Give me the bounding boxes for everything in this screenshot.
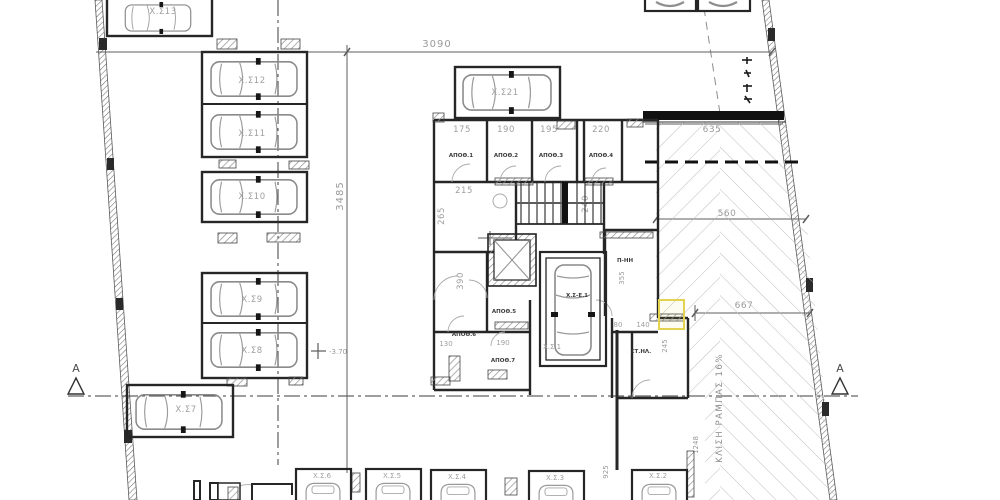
stall-label: Χ.Σ11 — [238, 129, 265, 139]
wall-stub — [267, 233, 300, 242]
dim-corr-h: 390 — [456, 272, 466, 290]
stall-label: Χ.Σ13 — [149, 7, 176, 17]
wall-stub — [217, 39, 237, 49]
wall-stub — [289, 161, 309, 169]
parking-stall-ks13: Χ.Σ13 — [107, 0, 212, 36]
parking-stall-ks5: Χ.Σ.5 — [366, 469, 421, 500]
dim-storage-3: 195 — [540, 125, 558, 135]
dim-e2: 140 — [636, 321, 649, 329]
level-marker: -3.70 — [311, 343, 347, 359]
dim-3090: 3090 — [422, 39, 451, 50]
stall-label: Χ.Σ10 — [238, 192, 265, 202]
parking-stall-ks3: Χ.Σ.3 — [529, 471, 584, 500]
stall-label: Χ.Σ8 — [241, 346, 262, 356]
top-right-stalls — [645, 0, 750, 11]
dim-e3: 245 — [661, 339, 669, 352]
wall-stub — [281, 39, 300, 49]
room-label-ap4: ΑΠΟΘ.4 — [589, 153, 613, 159]
floor-plan-canvas: 3090 3485 635 560 667 1248 925 -3.70 Χ.Σ… — [0, 0, 1000, 500]
room-label-ap6: ΑΠΟΘ.6 — [452, 332, 476, 338]
parking-stall-ks6: Χ.Σ.6 — [296, 469, 351, 500]
building-walls — [434, 120, 688, 470]
room-label-ap7: ΑΠΟΘ.7 — [491, 358, 515, 364]
wall-stub — [352, 473, 360, 492]
stall-label: Χ.Σ9 — [241, 295, 262, 305]
selection-highlight-box[interactable] — [659, 300, 684, 329]
bottom-row-walls — [194, 481, 292, 500]
section-letter: Α — [836, 362, 844, 375]
stall-label: Χ.Σ.4 — [448, 473, 467, 481]
level-value: -3.70 — [329, 348, 347, 356]
section-marker-right: Α — [832, 362, 848, 394]
dim-mech-h: 355 — [618, 271, 626, 284]
wall-stub — [289, 377, 303, 385]
parking-block-ks12-ks11: Χ.Σ12 Χ.Σ11 — [202, 52, 307, 157]
dim-e1: 80 — [614, 321, 623, 329]
parking-stall-ks7: Χ.Σ7 — [127, 385, 233, 437]
wall-stub — [219, 160, 236, 168]
property-boundary-left — [95, 0, 137, 500]
wall-stub — [228, 487, 238, 500]
dim-925: 925 — [602, 465, 610, 478]
dim-3485: 3485 — [335, 181, 346, 210]
dim-storage-2: 190 — [497, 125, 515, 135]
wall-stub — [218, 233, 237, 243]
room-label-elec: ΣΤ.ΗΛ. — [631, 349, 652, 355]
stall-label: Χ.Σ.1 — [543, 343, 561, 351]
ramp-slope-label: ΚΛΙΣΗ ΡΑΜΠΑΣ 16% — [715, 353, 725, 463]
room-label-mech: Π-ΗΗ — [617, 258, 633, 264]
dim-storage-4: 220 — [592, 125, 610, 135]
parking-stall-ks21: Χ.Σ21 — [455, 67, 560, 118]
staircase — [516, 182, 604, 224]
dim-storage-1: 175 — [453, 125, 471, 135]
wall-stub — [505, 478, 517, 495]
parking-stall-center: Χ.Σ-Ε.1 Χ.Σ.1 — [540, 252, 606, 366]
section-marker-left: Α — [68, 362, 84, 394]
stall-label: Χ.Σ.5 — [383, 472, 401, 480]
stall-label: Χ.Σ.6 — [313, 472, 332, 480]
dim-lobby-w: 215 — [455, 186, 473, 196]
parking-block-ks9-ks8: Χ.Σ9 Χ.Σ8 — [202, 273, 307, 378]
parking-stall-ks10: Χ.Σ10 — [202, 172, 307, 222]
boundary-survey-marks — [742, 57, 752, 103]
room-label-ap1: ΑΠΟΘ.1 — [449, 153, 473, 159]
parking-stall-ks2: Χ.Σ.2 — [632, 470, 687, 500]
stall-label: Χ.Σ21 — [491, 88, 518, 98]
dim-lobby-h: 265 — [437, 207, 447, 225]
stall-label: Χ.Σ.2 — [649, 472, 667, 480]
stall-label: Χ.Σ.3 — [546, 474, 564, 482]
room-label-ap2: ΑΠΟΘ.2 — [494, 153, 518, 159]
room-label-ap5: ΑΠΟΘ.5 — [492, 309, 516, 315]
elevator-shaft — [488, 234, 536, 286]
floor-plan-drawing: 3090 3485 635 560 667 1248 925 -3.70 Χ.Σ… — [0, 0, 1000, 500]
stall-label: Χ.Σ12 — [238, 76, 265, 86]
dim-stair-w: 240 — [581, 195, 591, 213]
stall-label: Χ.Σ-Ε.1 — [566, 293, 588, 299]
dim-b1: 130 — [439, 340, 452, 348]
parking-stall-ks4: Χ.Σ.4 — [431, 470, 486, 500]
room-label-ap3: ΑΠΟΘ.3 — [539, 153, 563, 159]
section-letter: Α — [72, 362, 80, 375]
stall-label: Χ.Σ7 — [175, 405, 196, 415]
dim-b2: 190 — [496, 339, 509, 347]
column-circle — [493, 194, 507, 208]
